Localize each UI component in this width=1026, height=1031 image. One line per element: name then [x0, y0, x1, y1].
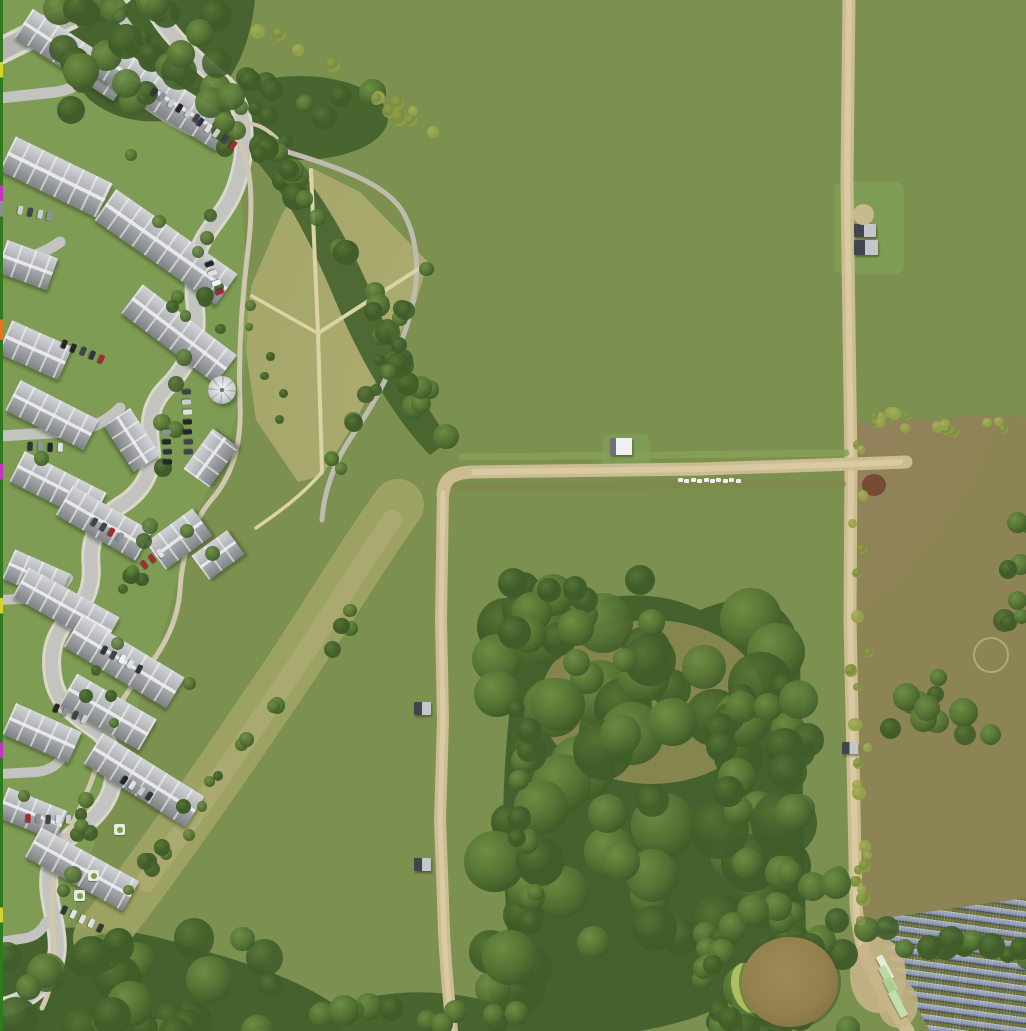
parked-car [212, 129, 221, 139]
structures-layer [0, 0, 1026, 1031]
parked-car [70, 343, 78, 353]
parked-car [163, 460, 172, 465]
equipment-shed [610, 438, 632, 455]
parked-car [47, 212, 53, 222]
parked-car [184, 440, 193, 445]
parked-car [27, 207, 33, 217]
satellite-map[interactable] [0, 0, 1026, 1031]
parked-car [184, 450, 193, 455]
parked-car [211, 279, 221, 286]
parked-car [108, 527, 116, 537]
parked-car [100, 645, 108, 655]
equipment-shed [854, 240, 878, 255]
road-crate [736, 479, 741, 483]
road-crate [697, 479, 702, 483]
parked-car [58, 443, 63, 452]
parked-car [17, 205, 23, 215]
parked-car [48, 442, 53, 451]
equipment-shed [854, 224, 876, 237]
parked-car [183, 410, 192, 415]
parked-car [215, 289, 225, 296]
parked-car [183, 430, 192, 435]
road-crate [723, 479, 728, 483]
parked-car [229, 140, 238, 150]
gazebo [208, 376, 236, 404]
parked-car [204, 123, 213, 133]
parked-car [140, 559, 149, 569]
parked-car [182, 390, 191, 395]
parked-car [62, 707, 70, 717]
parked-car [205, 261, 215, 268]
road-crate [729, 478, 734, 482]
parked-car [116, 532, 124, 542]
parked-car [127, 659, 135, 669]
parked-car [37, 210, 43, 220]
parked-car [120, 775, 129, 785]
utility-pad [74, 890, 85, 901]
parked-car [163, 450, 172, 455]
parked-car [89, 350, 97, 360]
parked-car [36, 814, 41, 823]
equipment-shed [842, 742, 858, 754]
parked-car [150, 87, 159, 97]
parked-car [137, 786, 146, 796]
equipment-shed [414, 858, 431, 871]
parked-car [156, 548, 165, 558]
parked-car [66, 815, 71, 824]
tile-edge-artifact [0, 0, 3, 1031]
parked-car [87, 918, 95, 928]
parked-car [184, 108, 193, 118]
parked-car [145, 792, 154, 802]
parked-car [53, 703, 61, 713]
parked-car [109, 650, 117, 660]
road-crate [704, 478, 709, 482]
parked-car [61, 339, 69, 349]
parked-car [26, 814, 31, 823]
parked-car [183, 420, 192, 425]
parked-car [38, 442, 43, 451]
parked-car [208, 270, 218, 277]
parked-car [176, 103, 185, 113]
parked-car [96, 923, 104, 933]
parked-car [148, 554, 157, 564]
parked-car [167, 98, 176, 108]
parked-car [182, 400, 191, 405]
parked-car [90, 517, 98, 527]
utility-pad [88, 870, 99, 881]
utility-pad [114, 824, 125, 835]
parked-car [99, 522, 107, 532]
parked-car [61, 905, 69, 915]
parked-car [81, 714, 89, 724]
parked-car [162, 440, 171, 445]
parked-car [129, 781, 138, 791]
parked-car [46, 814, 51, 823]
equipment-shed [414, 702, 431, 715]
road-crate [716, 478, 721, 482]
parked-car [98, 354, 106, 364]
parked-car [71, 711, 79, 721]
parked-car [78, 914, 86, 924]
parked-car [221, 134, 230, 144]
parked-car [136, 664, 144, 674]
road-crate [684, 479, 689, 483]
parked-car [118, 655, 126, 665]
road-crate [691, 478, 696, 482]
parked-car [69, 910, 77, 920]
parked-car [79, 347, 87, 357]
parked-car [162, 430, 171, 435]
road-crate [710, 479, 715, 483]
parked-car [159, 93, 168, 103]
parked-car [28, 442, 33, 451]
road-crate [678, 478, 683, 482]
parked-car [56, 815, 61, 824]
gravel-pad [853, 204, 874, 225]
